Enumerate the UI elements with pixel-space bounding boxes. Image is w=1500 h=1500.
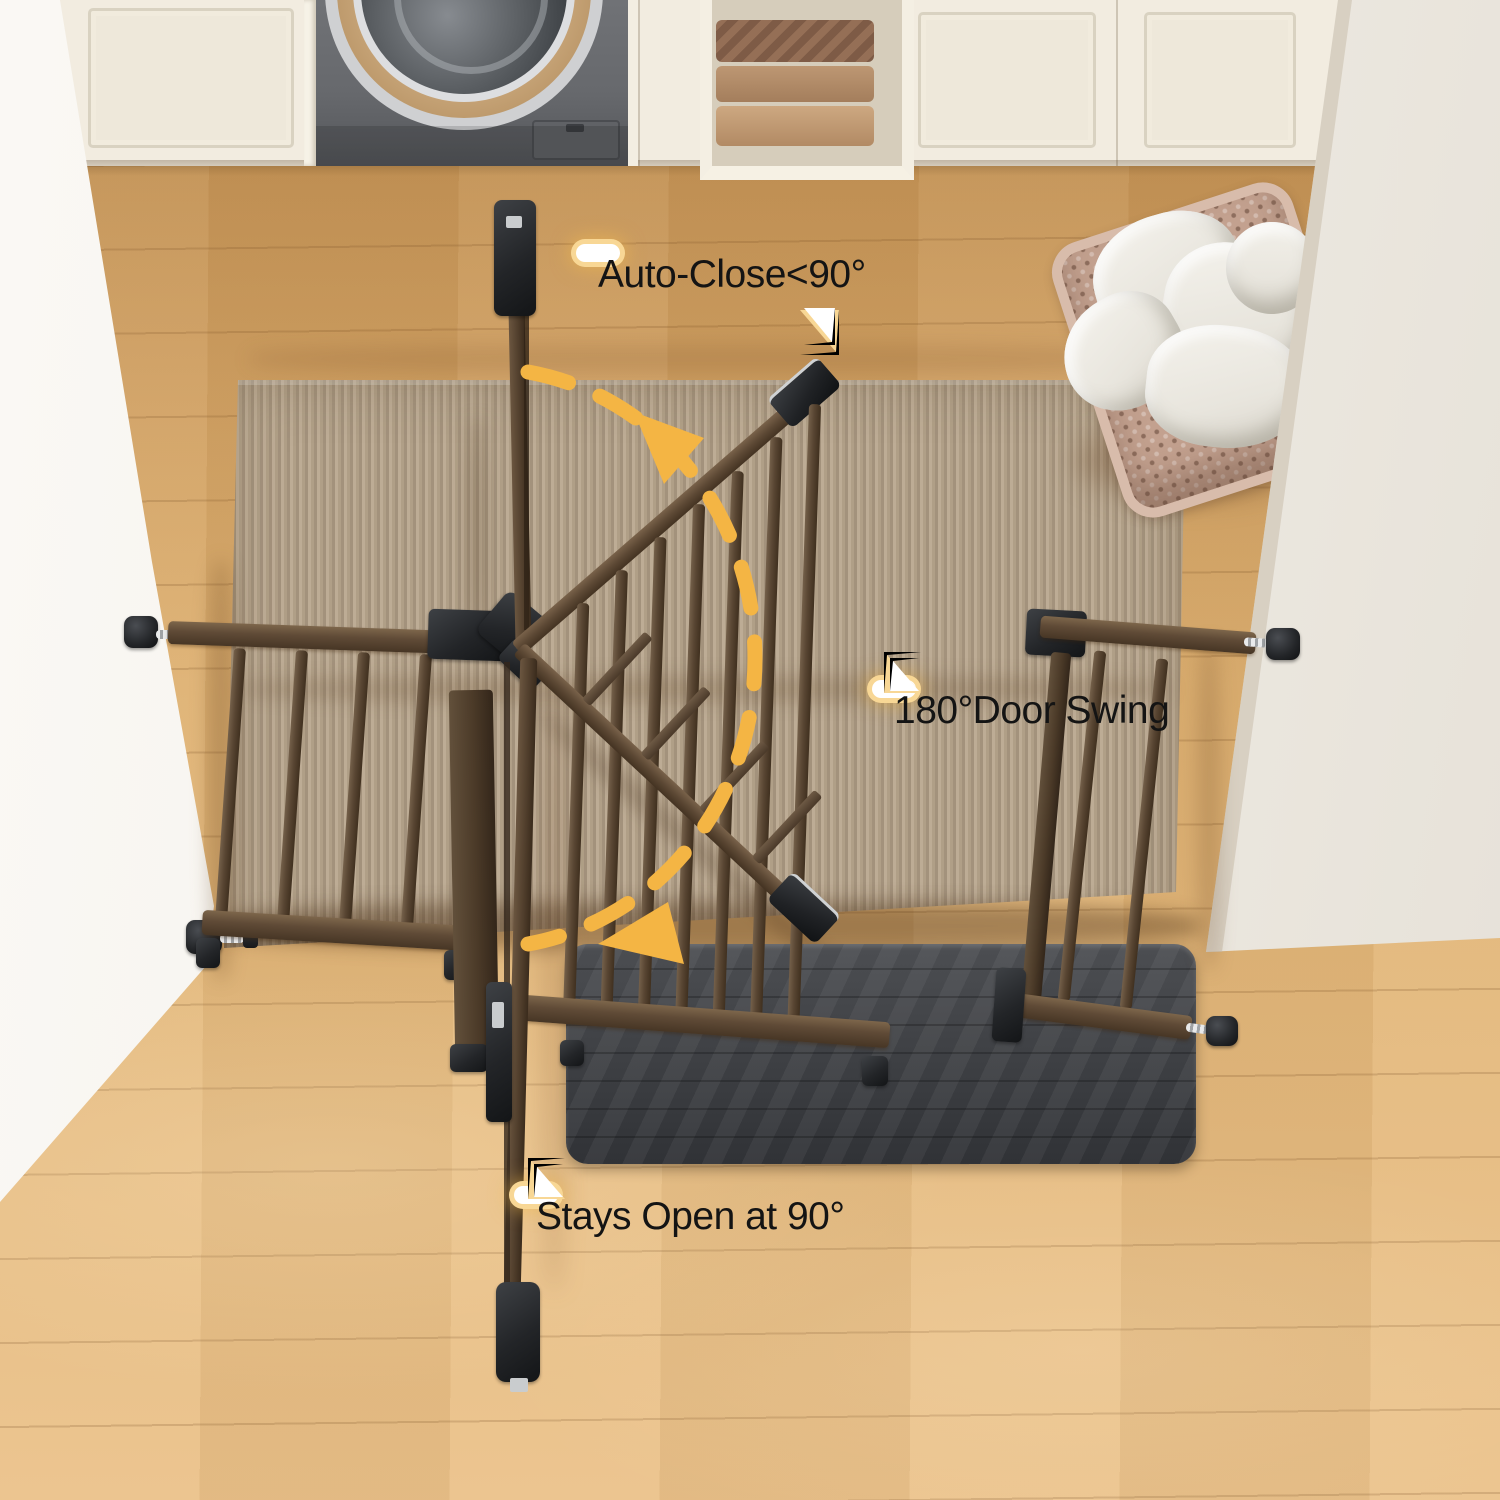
gate-foot [450, 1044, 488, 1072]
cabinet-door [58, 0, 320, 166]
mount-clip [991, 967, 1026, 1043]
washer-panel-latch [566, 124, 584, 132]
label-door-swing-text: 180°Door Swing [894, 689, 1169, 733]
towel [716, 106, 874, 146]
label-stays-open-text: Stays Open at 90° [536, 1195, 844, 1239]
right-doorframe-shadow [1198, 640, 1220, 970]
rug-top-shadow [250, 344, 1170, 374]
gate-foot [560, 1040, 584, 1066]
bubble-tail [804, 308, 835, 345]
cabinet-panel [88, 8, 294, 148]
pressure-knob [1266, 628, 1300, 660]
cabinet-side-panel [628, 0, 638, 166]
bubble-tail [890, 658, 919, 691]
cabinet-door [890, 0, 1118, 166]
cabinet-side-panel [304, 0, 316, 166]
cabinet-panel [918, 12, 1096, 148]
bubble-tail [534, 1164, 563, 1197]
latch-slider [492, 1002, 504, 1028]
product-scene: Auto-Close<90° 180°Door Swing Stays Open… [0, 0, 1500, 1500]
latch-slider [506, 216, 522, 228]
pressure-knob [1206, 1016, 1238, 1046]
gate-foot [862, 1056, 888, 1086]
foot-nub [510, 1378, 528, 1392]
pressure-knob [124, 616, 158, 648]
door-mat [566, 944, 1196, 1164]
towel [716, 66, 874, 102]
washing-machine [316, 0, 628, 166]
door-foot-cap [496, 1282, 540, 1382]
patterned-towel [716, 20, 874, 62]
door-edge-line [504, 662, 510, 1288]
gate-foot [196, 938, 220, 968]
cabinet-panel [1144, 12, 1296, 148]
cabinet-filler [638, 0, 702, 166]
pressure-rod [1244, 637, 1269, 648]
towel-shelf [700, 0, 914, 180]
label-auto-close: Auto-Close<90° [576, 244, 620, 262]
label-auto-close-text: Auto-Close<90° [598, 253, 866, 297]
cabinet-door [1116, 0, 1318, 166]
washer-access-panel [532, 120, 620, 160]
